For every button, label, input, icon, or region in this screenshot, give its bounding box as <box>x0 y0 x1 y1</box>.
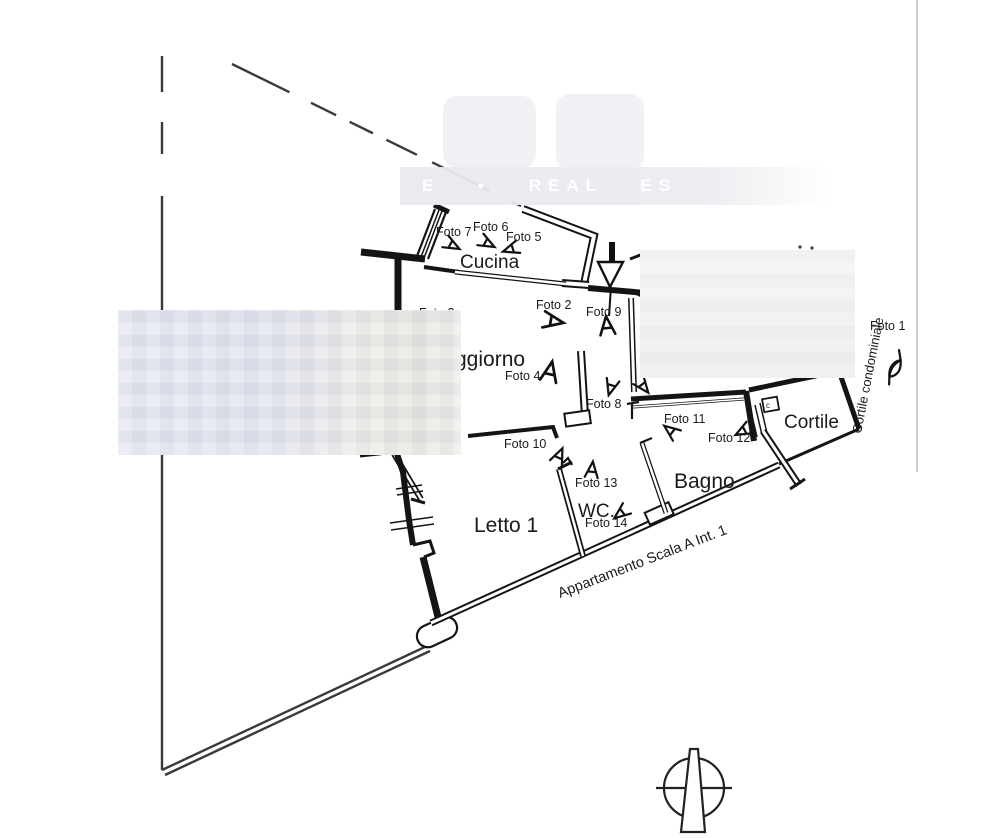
apartment-caption: Appartamento Scala A Int. 1 <box>556 522 730 601</box>
privacy-blur-patch-right <box>640 250 855 378</box>
stray-mark <box>798 245 801 248</box>
photo-label-7: Foto 7 <box>436 225 471 239</box>
room-label-soggiorno: ggiorno <box>455 348 525 371</box>
room-label-bagno: Bagno <box>674 470 735 493</box>
photo-label-4: Foto 4 <box>505 369 540 383</box>
photo-label-13: Foto 13 <box>575 476 617 490</box>
room-label-cortile: Cortile <box>784 412 839 433</box>
privacy-blur-patch-left <box>118 310 461 455</box>
watermark-logo-shape <box>443 96 536 168</box>
camera-marker-foto2 <box>542 311 565 330</box>
watermark-band: E • REAL ES <box>400 167 830 205</box>
north-compass <box>656 749 732 832</box>
photo-label-6: Foto 6 <box>473 220 508 234</box>
photo-label-2: Foto 2 <box>536 298 571 312</box>
photo-label-12: Foto 12 <box>708 431 750 445</box>
photo-label-10: Foto 10 <box>504 437 546 451</box>
photo-label-14: Foto 14 <box>585 516 627 530</box>
photo-label-9: Foto 9 <box>586 305 621 319</box>
watermark-text: E • REAL ES <box>400 176 677 196</box>
room-label-cucina: Cucina <box>460 252 520 273</box>
photo-label-5: Foto 5 <box>506 230 541 244</box>
camera-marker-foto4 <box>540 360 560 383</box>
camera-marker-foto1 <box>876 350 912 384</box>
camera-marker-foto10 <box>550 446 568 466</box>
watermark-logo-shape <box>556 94 644 170</box>
utility-box-label: c <box>766 401 770 410</box>
floor-plan-page: Cucina ggiorno Letto 1 WC. Bagno Cortile… <box>0 0 1000 838</box>
photo-label-8: Foto 8 <box>586 397 621 411</box>
camera-marker-foto8 <box>602 378 619 397</box>
photo-label-11: Foto 11 <box>664 412 706 426</box>
room-label-letto1: Letto 1 <box>474 514 538 537</box>
camera-marker-foto6 <box>477 234 497 253</box>
